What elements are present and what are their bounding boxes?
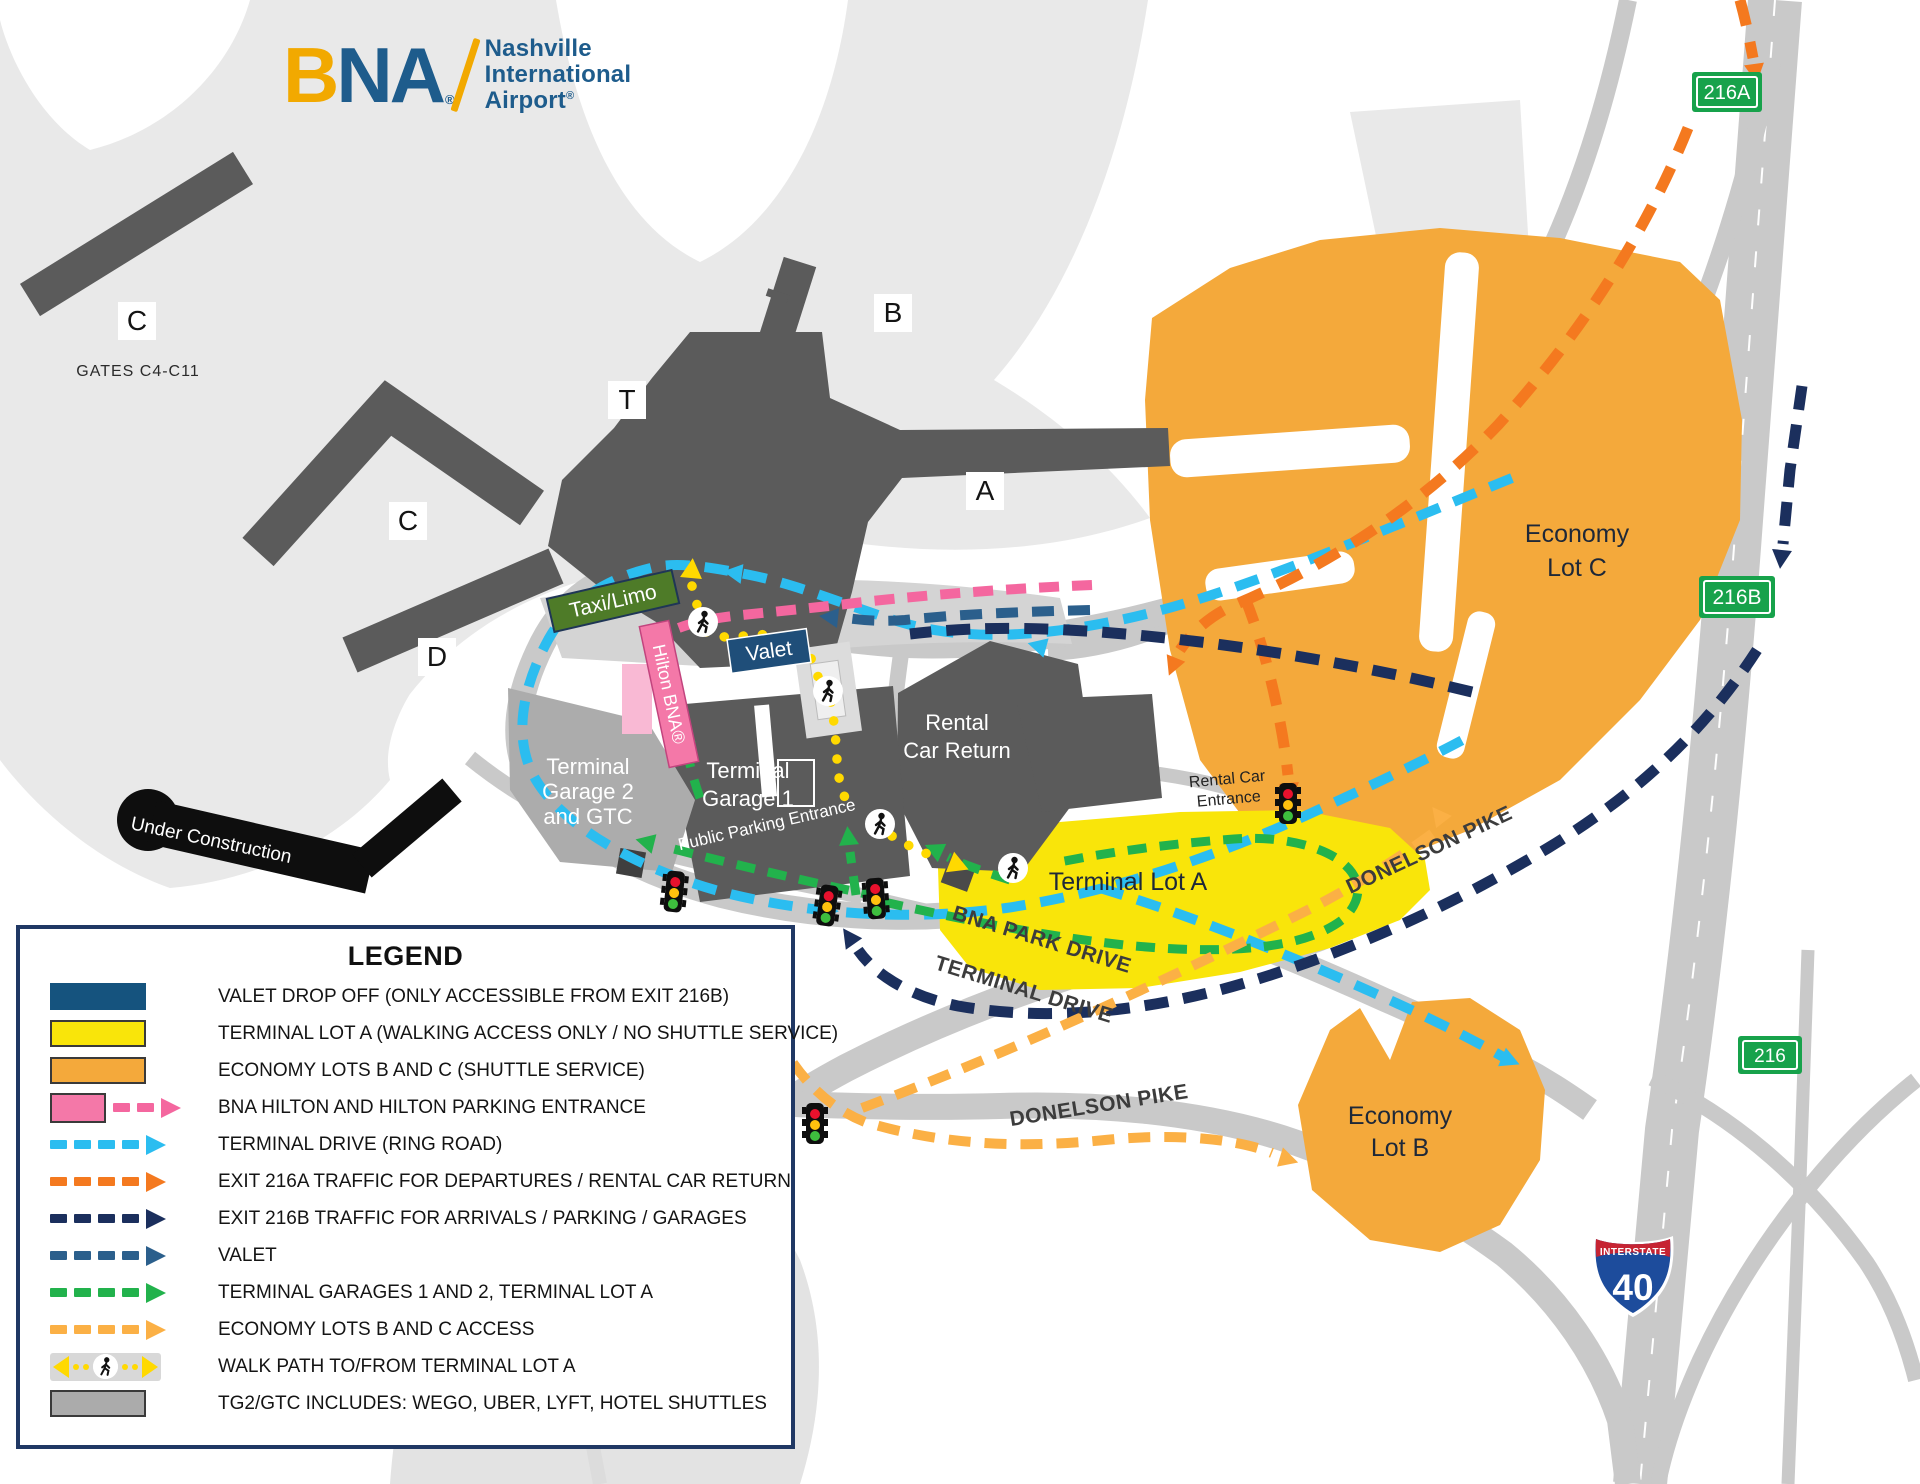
svg-text:Rental: Rental [925, 710, 989, 735]
svg-text:216: 216 [1754, 1046, 1786, 1067]
concourse-label-c2: C [389, 502, 427, 540]
svg-text:216A: 216A [1704, 82, 1751, 104]
svg-text:A: A [976, 475, 995, 506]
amber-arrow-icon [146, 1320, 166, 1340]
svg-text:Economy: Economy [1525, 520, 1630, 548]
walk-arrow-right-icon [142, 1356, 158, 1378]
hilton-building [622, 664, 652, 734]
bna-logo: BNA ® Nashville International Airport® [283, 36, 631, 114]
legend-item-economy-access: ECONOMY LOTS B AND C ACCESS [20, 1311, 791, 1348]
rental-car-lot [1016, 694, 1162, 812]
legend-item-exit-216a: EXIT 216A TRAFFIC FOR DEPARTURES / RENTA… [20, 1163, 791, 1200]
svg-text:Economy: Economy [1348, 1102, 1453, 1130]
legend-item-terminal-lot-a: TERMINAL LOT A (WALKING ACCESS ONLY / NO… [20, 1015, 791, 1052]
concourse-label-c1: C [118, 302, 156, 340]
legend-title: LEGEND [20, 941, 791, 972]
gates-c4-c11-label: GATES C4-C11 [76, 363, 199, 380]
svg-text:and GTC: and GTC [543, 804, 632, 829]
svg-text:T: T [618, 384, 635, 415]
legend-item-valet-drop-off: VALET DROP OFF (ONLY ACCESSIBLE FROM EXI… [20, 978, 791, 1015]
walk-arrow-left-icon [53, 1356, 69, 1378]
steel-arrow-icon [146, 1246, 166, 1266]
legend-item-exit-216b: EXIT 216B TRAFFIC FOR ARRIVALS / PARKING… [20, 1200, 791, 1237]
exit-216a-sign: 216A [1692, 72, 1762, 112]
svg-text:Car Return: Car Return [903, 738, 1011, 763]
bna-logo-slash [450, 38, 480, 112]
legend-item-terminal-drive: TERMINAL DRIVE (RING ROAD) [20, 1126, 791, 1163]
exit-216b-sign: 216B [1699, 576, 1775, 618]
valet-navy-swatch [50, 983, 146, 1010]
svg-text:Garage 2: Garage 2 [542, 779, 634, 804]
legend-item-tg2-gtc: TG2/GTC INCLUDES: WEGO, UBER, LYFT, HOTE… [20, 1385, 791, 1422]
orange-swatch [50, 1057, 146, 1084]
svg-text:Lot C: Lot C [1547, 554, 1607, 582]
concourse-label-b: B [874, 294, 912, 332]
svg-text:Garage 1: Garage 1 [702, 786, 794, 811]
svg-text:216B: 216B [1712, 586, 1761, 609]
pedestrian-icon [93, 1354, 118, 1379]
pink-arrow-icon [161, 1098, 181, 1118]
bna-logo-letters: BNA ® [283, 36, 452, 114]
legend-item-valet-route: VALET [20, 1237, 791, 1274]
legend-item-economy-lots: ECONOMY LOTS B AND C (SHUTTLE SERVICE) [20, 1052, 791, 1089]
airport-name: Nashville International Airport® [485, 36, 632, 113]
terminal-label-t: T [608, 381, 646, 419]
exit-216-sign: 216 [1738, 1036, 1802, 1074]
yellow-swatch [50, 1020, 146, 1047]
orange-arrow-icon [146, 1172, 166, 1192]
concourse-label-d: D [418, 638, 456, 676]
terminal-garage-2-label: Terminal Garage 2 and GTC [542, 754, 634, 829]
green-arrow-icon [146, 1283, 166, 1303]
svg-text:40: 40 [1612, 1267, 1653, 1308]
svg-text:INTERSTATE: INTERSTATE [1600, 1247, 1666, 1258]
svg-text:Terminal: Terminal [546, 754, 629, 779]
concourse-label-a: A [966, 472, 1004, 510]
navy-arrow-icon [146, 1209, 166, 1229]
svg-text:B: B [884, 297, 903, 328]
walk-path-symbol [50, 1353, 161, 1381]
svg-text:Terminal: Terminal [706, 758, 789, 783]
svg-text:C: C [398, 505, 418, 536]
svg-text:Lot B: Lot B [1371, 1134, 1429, 1162]
exit-216b-route [1783, 386, 1802, 544]
svg-text:C: C [127, 305, 147, 336]
legend-item-garages: TERMINAL GARAGES 1 AND 2, TERMINAL LOT A [20, 1274, 791, 1311]
cyan-arrow-icon [146, 1135, 166, 1155]
svg-text:D: D [427, 641, 447, 672]
legend-item-walk-path: WALK PATH TO/FROM TERMINAL LOT A [20, 1348, 791, 1385]
gray-swatch [50, 1390, 146, 1417]
legend: LEGEND VALET DROP OFF (ONLY ACCESSIBLE F… [16, 925, 795, 1449]
terminal-lot-a-label: Terminal Lot A [1049, 868, 1208, 896]
pink-swatch [50, 1093, 106, 1123]
legend-item-hilton: BNA HILTON AND HILTON PARKING ENTRANCE [20, 1089, 791, 1126]
